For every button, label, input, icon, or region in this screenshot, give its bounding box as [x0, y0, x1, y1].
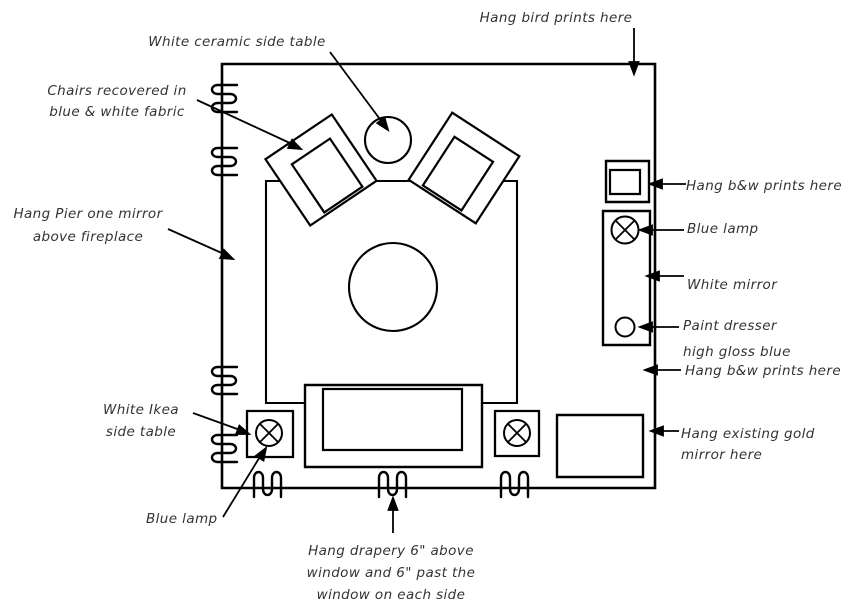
arrow-drapery: [389, 498, 398, 533]
ceramic-side-table: [365, 117, 411, 163]
label-line: above fireplace: [8, 226, 168, 249]
coffee-table: [349, 243, 437, 331]
label-bw-prints-bottom: Hang b&w prints here: [685, 361, 841, 382]
label-white-ikea-side-table: White Ikea side table: [94, 399, 188, 443]
label-line: Hang drapery 6" above: [299, 540, 483, 562]
arrow-bw-prints-bottom: [645, 366, 681, 375]
drapery-coil-left-4: [212, 435, 237, 462]
side-table-left: [247, 411, 293, 457]
drapery-coil-bottom-1: [254, 472, 281, 497]
label-line: Hang existing gold: [681, 424, 815, 445]
label-line: side table: [94, 421, 188, 443]
label-hang-drapery: Hang drapery 6" above window and 6" past…: [299, 540, 483, 606]
label-line: window and 6" past the: [299, 562, 483, 584]
label-line: Hang bird prints here: [476, 8, 636, 29]
arrow-bird-prints: [630, 28, 639, 74]
arrow-chairs: [197, 100, 301, 149]
label-line: mirror here: [681, 445, 815, 466]
label-line: White mirror: [687, 275, 777, 296]
sofa: [305, 385, 482, 467]
label-line: blue & white fabric: [37, 102, 197, 123]
lamp-symbol-right: [504, 420, 530, 446]
floor-plan-canvas: White ceramic side table Hang bird print…: [0, 0, 862, 611]
lamp-symbol-dresser: [612, 217, 639, 244]
arrow-white-mirror: [647, 272, 684, 281]
label-line: Hang b&w prints here: [686, 176, 842, 197]
label-line: White Ikea: [94, 399, 188, 421]
label-hang-bird-prints: Hang bird prints here: [476, 8, 636, 29]
label-line: Blue lamp: [146, 509, 218, 530]
label-blue-lamp-left: Blue lamp: [146, 509, 218, 530]
arrow-blue-lamp-left: [223, 448, 266, 517]
label-bw-prints-top: Hang b&w prints here: [686, 176, 842, 197]
label-line: Chairs recovered in: [37, 81, 197, 102]
dresser-accessory-circle: [616, 318, 635, 337]
drapery-coil-bottom-3: [501, 472, 528, 497]
console-table: [557, 415, 643, 477]
label-line: Paint dresser: [683, 313, 791, 339]
drapery-coil-bottom-2: [379, 472, 406, 497]
label-white-mirror: White mirror: [687, 275, 777, 296]
arrow-blue-lamp-right: [640, 226, 684, 235]
label-gold-mirror: Hang existing gold mirror here: [681, 424, 815, 466]
armchair-right: [409, 113, 520, 224]
drapery-coil-left-3: [212, 367, 237, 394]
side-table-right: [495, 411, 539, 456]
armchair-left: [265, 114, 376, 225]
label-line: window on each side: [299, 584, 483, 606]
label-white-ceramic-side-table: White ceramic side table: [142, 32, 332, 53]
picture-frame: [606, 161, 649, 202]
label-paint-dresser: Paint dresser high gloss blue: [683, 313, 791, 365]
label-blue-lamp-right: Blue lamp: [687, 219, 759, 240]
label-line: Hang b&w prints here: [685, 361, 841, 382]
drapery-coil-left-2: [212, 148, 237, 175]
label-line: White ceramic side table: [142, 32, 332, 53]
arrow-paint-dresser: [640, 323, 679, 332]
label-line: Hang Pier one mirror: [8, 203, 168, 226]
label-line: Blue lamp: [687, 219, 759, 240]
lamp-symbol-left: [256, 420, 282, 446]
label-pier-one-mirror: Hang Pier one mirror above fireplace: [8, 203, 168, 249]
label-chairs-recovered: Chairs recovered in blue & white fabric: [37, 81, 197, 123]
